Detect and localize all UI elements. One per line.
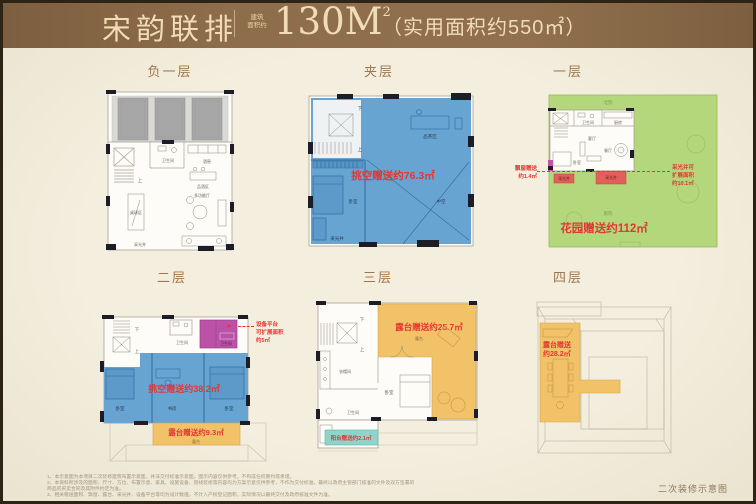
railing-icon: [313, 161, 363, 168]
room-label-well1: 采光井: [605, 175, 617, 180]
seal-line2: 面积约: [243, 22, 271, 30]
poster: 宋韵联排 建筑 面积约 130M2 （实用面积约550㎡） 负一层 夹层 一层 …: [0, 0, 756, 504]
room-label-dining: 餐厅: [604, 147, 612, 153]
yard-label-north: 北院: [604, 99, 613, 106]
title-basement: 负一层: [147, 61, 192, 80]
floorplan-basement: 上 卫生间 酒窖 品酒区 桌球区 多功能厅 采光井: [102, 88, 238, 256]
gift-text-void: 挑空赠送约38.2㎡: [148, 383, 220, 394]
header-divider: [234, 10, 235, 37]
room-label-bed: 卧室: [385, 389, 394, 396]
bed-icon: [313, 176, 343, 214]
seal-line1: 建筑: [243, 14, 271, 22]
floorplan-floor4: 露台赠送 约28.2㎡: [533, 295, 683, 465]
room-label-living: 客厅: [588, 135, 596, 141]
disclaimer-text: 1、本示意图为本项目二次装修建筑布置示意图，并非交付标准示意图，图示内容仅供参考…: [47, 475, 419, 499]
stairs-up-label: 上: [138, 177, 143, 183]
caption-secondary-decoration: 二次装修示意图: [658, 482, 728, 495]
gift-text-void: 挑空赠送约76.3㎡: [351, 169, 435, 182]
room-label-well: 采光井: [134, 241, 146, 247]
room-label-bath: 卫生间: [582, 119, 594, 125]
bay-window-note: 飘窗赠送 约1.4㎡: [503, 165, 537, 181]
room-label-cloak: 衣帽间: [339, 368, 351, 374]
gift-text-garden: 花园赠送约112㎡: [560, 221, 648, 235]
wardrobe-icon: [313, 218, 326, 240]
yard-label-south: 南院: [604, 210, 613, 217]
room-label-study: 书房: [168, 405, 177, 412]
title-floor4: 四层: [553, 267, 583, 286]
parking-area: [112, 96, 228, 142]
project-name: 宋韵联排: [102, 6, 238, 48]
title-mezzanine: 夹层: [364, 61, 394, 80]
stairs-up-label: 上: [358, 146, 363, 152]
room-label-bed: 卧室: [349, 198, 358, 205]
bed-icon: [210, 367, 244, 399]
room-label-well2: 采光井: [558, 176, 570, 181]
room-label-bath: 卫生间: [162, 157, 174, 163]
room-label-bed: 卧室: [573, 159, 581, 165]
area-value: 130M2: [274, 0, 391, 43]
stairs-up-label: 上: [135, 348, 140, 354]
room-label-terrace: 露台: [192, 438, 200, 444]
light-well-note: 采光井可 扩展面积 约10.1㎡: [672, 164, 712, 188]
room-label-kitchen: 厨房: [614, 119, 622, 125]
stairs-up-label: 上: [360, 346, 365, 352]
bed-icon: [106, 369, 134, 399]
room-label-billiards: 桌球区: [130, 209, 142, 215]
room-label-hall: 多功能厅: [194, 192, 210, 198]
room-label-bed2: 卧室: [225, 405, 234, 412]
gift-text-terrace-line1: 露台赠送: [543, 340, 572, 349]
room-label-bath: 卫生间: [347, 409, 359, 415]
room-label-tea: 品茶区: [423, 133, 437, 140]
header: 宋韵联排 建筑 面积约 130M2 （实用面积约550㎡）: [0, 0, 756, 48]
room-label-void: 中空: [437, 198, 446, 205]
usable-area: （实用面积约550㎡）: [382, 11, 586, 40]
room-label-tasting: 品酒区: [197, 183, 209, 189]
room-label-bath1: 卫生间: [176, 339, 188, 345]
gift-text-terrace: 露台赠送约25.7㎡: [395, 322, 463, 332]
area-seal: 建筑 面积约: [243, 14, 271, 30]
floorplan-floor3: 露台赠送约25.7㎡ 露台 下 上 衣帽间 卧室 卫生间 阳台赠送约2.1㎡: [301, 293, 481, 465]
equipment-platform-note: 设备平台 可扩展面积 约5㎡: [256, 321, 300, 345]
floorplan-mezzanine: 下 上 卧室 中空 品茶区 采光井 挑空赠送约76.3㎡: [303, 90, 479, 252]
gift-text-terrace-line2: 约28.2㎡: [543, 349, 571, 358]
title-floor1: 一层: [553, 61, 583, 80]
annotation-marker: [228, 325, 231, 328]
gift-text-balcony: 阳台赠送约2.1㎡: [331, 434, 372, 442]
room-label-cellar: 酒窖: [203, 158, 211, 164]
title-floor3: 三层: [363, 267, 393, 286]
gift-text-terrace: 露台赠送约9.3㎡: [168, 427, 224, 437]
terrace-gift-region: [540, 323, 620, 422]
ann otation-leader-line: [238, 326, 254, 327]
floorplan-floor2: 卧室 书房 卧室 挑空赠送约38.2㎡ 下 上 卫生间 卫生间 露台赠送约9.3…: [96, 293, 280, 469]
room-label-bath2: 卫生间: [220, 341, 232, 346]
annotation-leader-line: [537, 171, 670, 172]
room-label-well: 采光井: [330, 235, 344, 242]
title-floor2: 二层: [157, 267, 187, 286]
room-label-bed1: 卧室: [116, 405, 125, 412]
room-label-terrace: 露台: [415, 335, 423, 341]
